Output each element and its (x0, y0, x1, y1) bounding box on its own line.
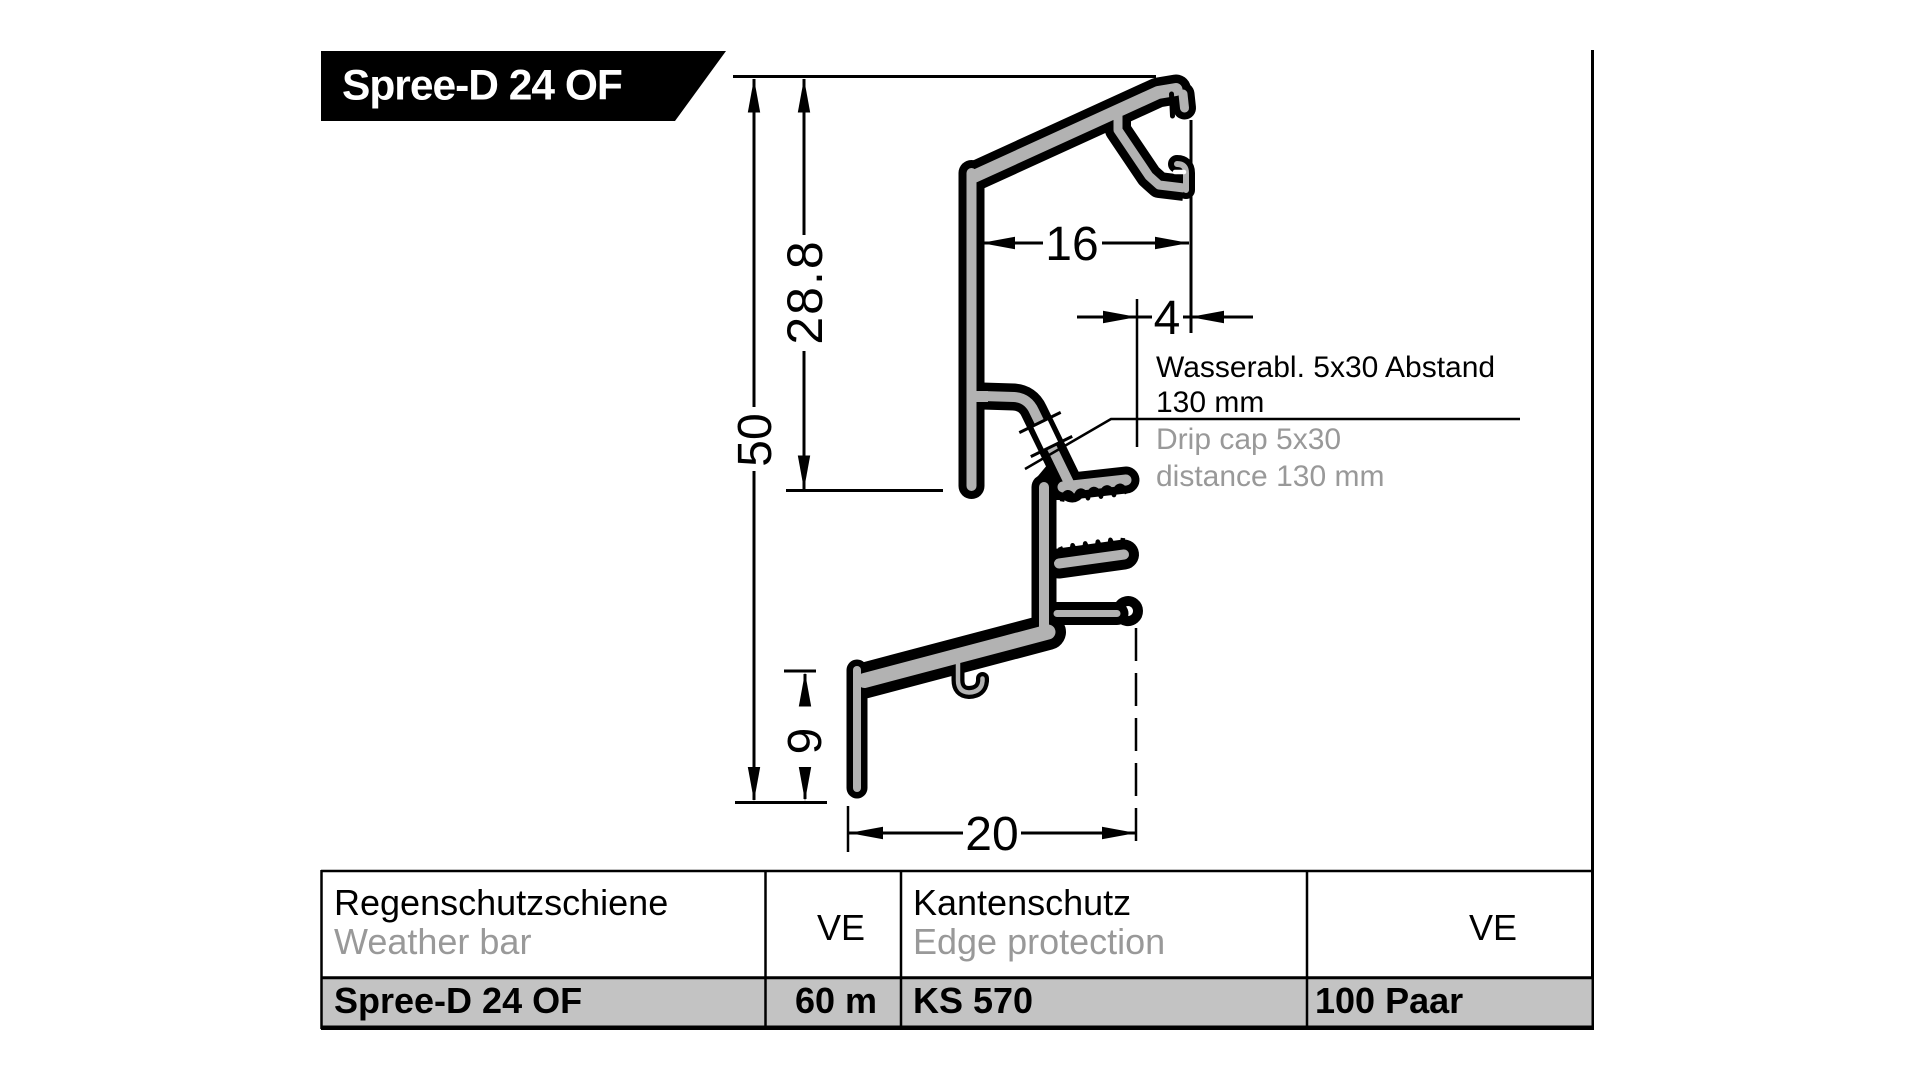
svg-text:130 mm: 130 mm (1156, 386, 1264, 419)
svg-text:distance 130 mm: distance 130 mm (1156, 460, 1384, 493)
svg-text:KS 570: KS 570 (913, 980, 1033, 1021)
svg-text:60 m: 60 m (795, 980, 877, 1021)
svg-text:20: 20 (965, 808, 1018, 861)
svg-text:50: 50 (729, 413, 782, 466)
svg-text:Wasserabl. 5x30 Abstand: Wasserabl. 5x30 Abstand (1156, 351, 1495, 384)
svg-text:Drip cap 5x30: Drip cap 5x30 (1156, 423, 1341, 456)
svg-text:9: 9 (779, 728, 832, 755)
svg-text:16: 16 (1045, 218, 1098, 271)
svg-text:Spree-D 24 OF: Spree-D 24 OF (342, 63, 622, 110)
svg-text:VE: VE (1469, 907, 1517, 948)
svg-text:Regenschutzschiene: Regenschutzschiene (334, 882, 668, 923)
svg-text:VE: VE (817, 907, 865, 948)
svg-text:Spree-D 24 OF: Spree-D 24 OF (334, 980, 582, 1021)
svg-text:100 Paar: 100 Paar (1315, 980, 1463, 1021)
svg-text:4: 4 (1154, 292, 1181, 345)
svg-text:Edge protection: Edge protection (913, 921, 1165, 962)
svg-text:Weather bar: Weather bar (334, 921, 531, 962)
svg-text:28.8: 28.8 (777, 239, 833, 344)
svg-text:Kantenschutz: Kantenschutz (913, 882, 1131, 923)
